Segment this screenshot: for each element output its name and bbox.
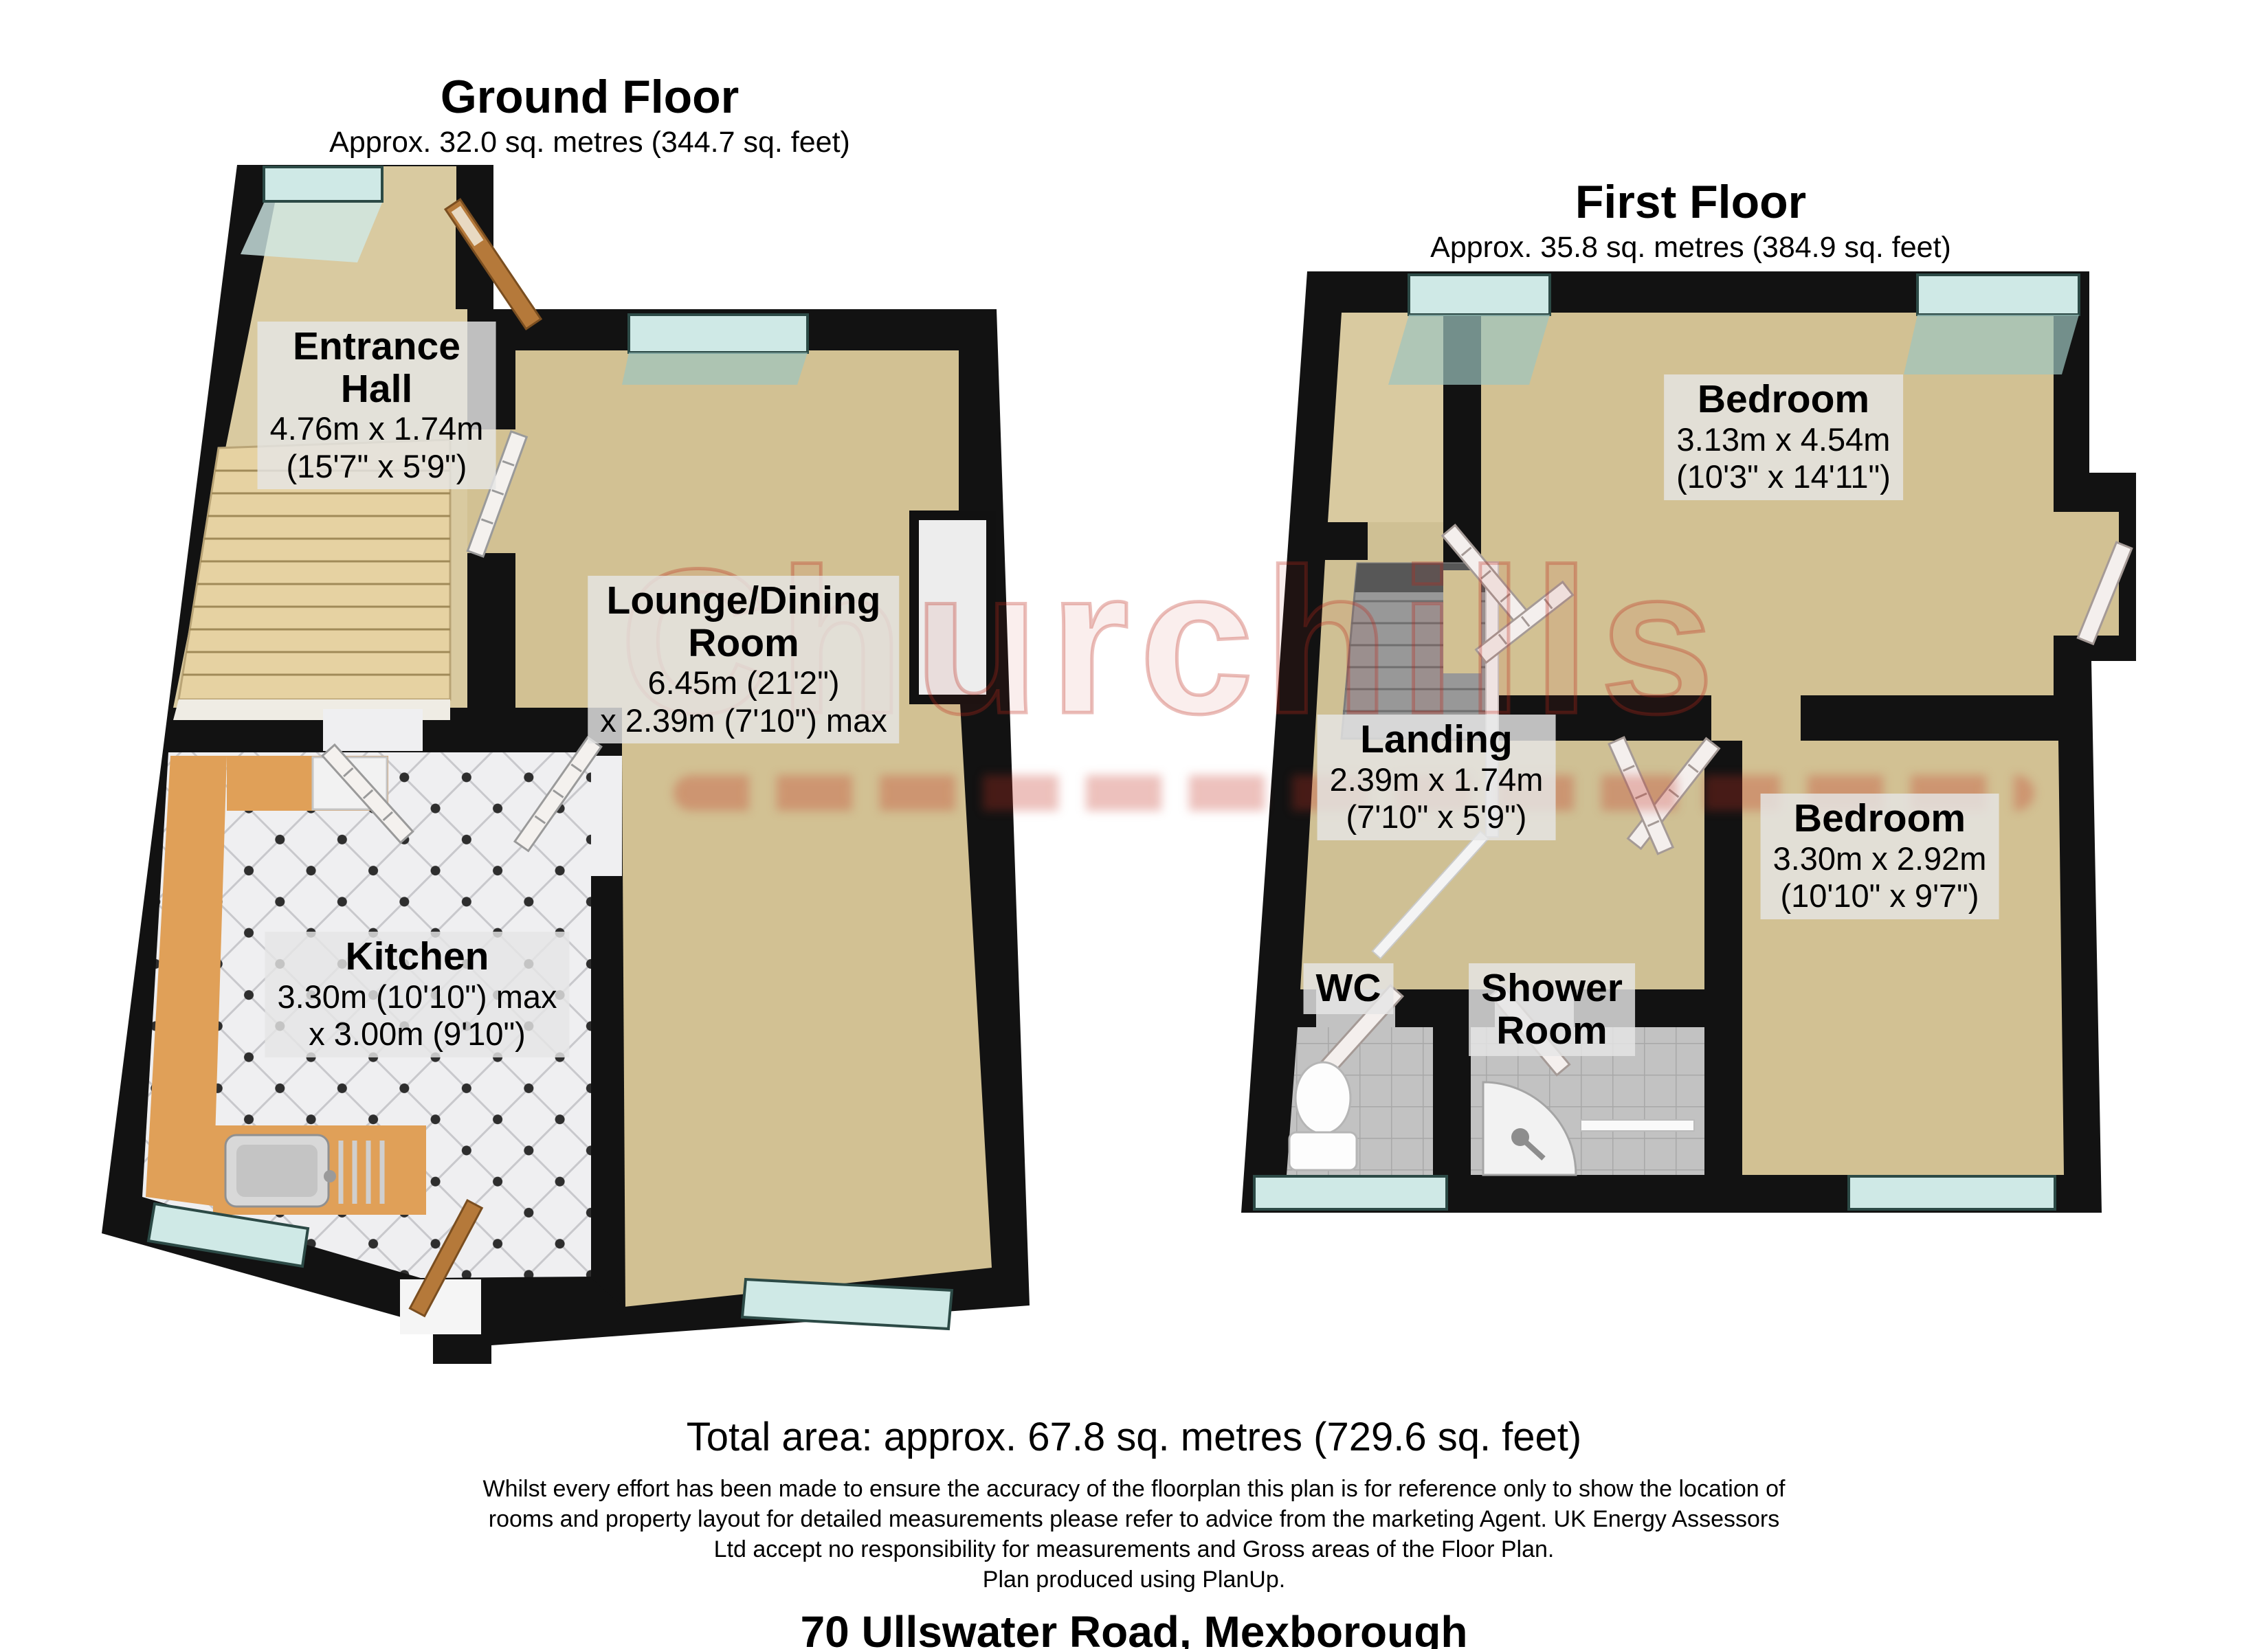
bedroom1-window-right [1917,275,2079,315]
room-dim-imperial: (10'3" x 14'11") [1676,458,1891,496]
toilet [1289,1062,1357,1170]
room-name: Landing [1330,719,1544,761]
hall-kitchen-opening [323,709,423,751]
room-dim-metric: 6.45m (21'2") [600,664,887,702]
room-name: Room [1481,1010,1623,1053]
entrance-window [264,167,382,201]
room-name: Shower [1481,967,1623,1010]
first-floor-title: First Floor [1575,175,1806,229]
room-label-wc: WC [1304,963,1394,1014]
room-dim-imperial: (15'7" x 5'9") [270,448,484,486]
ground-floor-title: Ground Floor [441,70,739,124]
disclaimer-line-3: Ltd accept no responsibility for measure… [714,1536,1555,1563]
room-dim-metric: 3.30m x 2.92m [1773,840,1987,878]
disclaimer-line-2: rooms and property layout for detailed m… [489,1506,1779,1533]
room-label-lounge: Lounge/Dining Room 6.45m (21'2") x 2.39m… [588,576,899,743]
lounge-top-window [629,315,808,352]
room-dim-metric: 3.13m x 4.54m [1676,421,1891,459]
total-area-text: Total area: approx. 67.8 sq. metres (729… [687,1414,1581,1460]
disclaimer-line-1: Whilst every effort has been made to ens… [483,1476,1786,1503]
room-label-kitchen: Kitchen 3.30m (10'10") max x 3.00m (9'10… [265,932,569,1057]
room-name: Room [600,622,887,665]
wc-window [1254,1176,1447,1209]
room-label-bedroom1: Bedroom 3.13m x 4.54m (10'3" x 14'11") [1664,374,1903,500]
room-name: Bedroom [1773,798,1987,840]
room-label-shower-room: Shower Room [1469,963,1635,1056]
bedroom2-window [1849,1176,2055,1209]
room-dim-imperial: x 2.39m (7'10") max [600,702,887,740]
room-dim-imperial: (10'10" x 9'7") [1773,877,1987,915]
room-dim-metric: 3.30m (10'10") max [277,978,557,1016]
towel-rail [1581,1120,1694,1131]
bedroom1-window-left [1409,275,1550,315]
wc-shower-wall [1433,1027,1471,1175]
room-name: Hall [270,368,484,411]
ground-floor-area: Approx. 32.0 sq. metres (344.7 sq. feet) [329,126,850,159]
room-label-entrance-hall: Entrance Hall 4.76m x 1.74m (15'7" x 5'9… [258,322,496,489]
bedroom2-opening [1711,695,1801,741]
kitchen-lounge-opening [591,756,622,876]
room-dim-imperial: (7'10" x 5'9") [1330,798,1544,836]
cupboard-opening [1368,522,1443,560]
room-label-bedroom2: Bedroom 3.30m x 2.92m (10'10" x 9'7") [1761,794,1999,919]
room-name: WC [1316,967,1381,1010]
room-name: Kitchen [277,936,557,978]
front-door-opening [379,166,456,205]
room-dim-metric: 2.39m x 1.74m [1330,761,1544,799]
chimney-breast [914,515,991,699]
first-floor-area: Approx. 35.8 sq. metres (384.9 sq. feet) [1430,231,1951,265]
room-dim-metric: 4.76m x 1.74m [270,410,484,448]
room-name: Bedroom [1676,379,1891,421]
disclaimer-line-4: Plan produced using PlanUp. [983,1567,1285,1593]
bedroom2-left-wall [1704,741,1742,1175]
room-label-landing: Landing 2.39m x 1.74m (7'10" x 5'9") [1318,715,1556,840]
floorplan-page: Churchills Ground Floor Approx. 32.0 sq.… [0,0,2268,1649]
room-name: Entrance [270,326,484,368]
ground-floor-plan [102,165,1030,1364]
room-name: Lounge/Dining [600,580,887,622]
room-dim-imperial: x 3.00m (9'10") [277,1016,557,1053]
property-address: 70 Ullswater Road, Mexborough [801,1606,1468,1649]
bedroom1-opening [1443,570,1481,673]
